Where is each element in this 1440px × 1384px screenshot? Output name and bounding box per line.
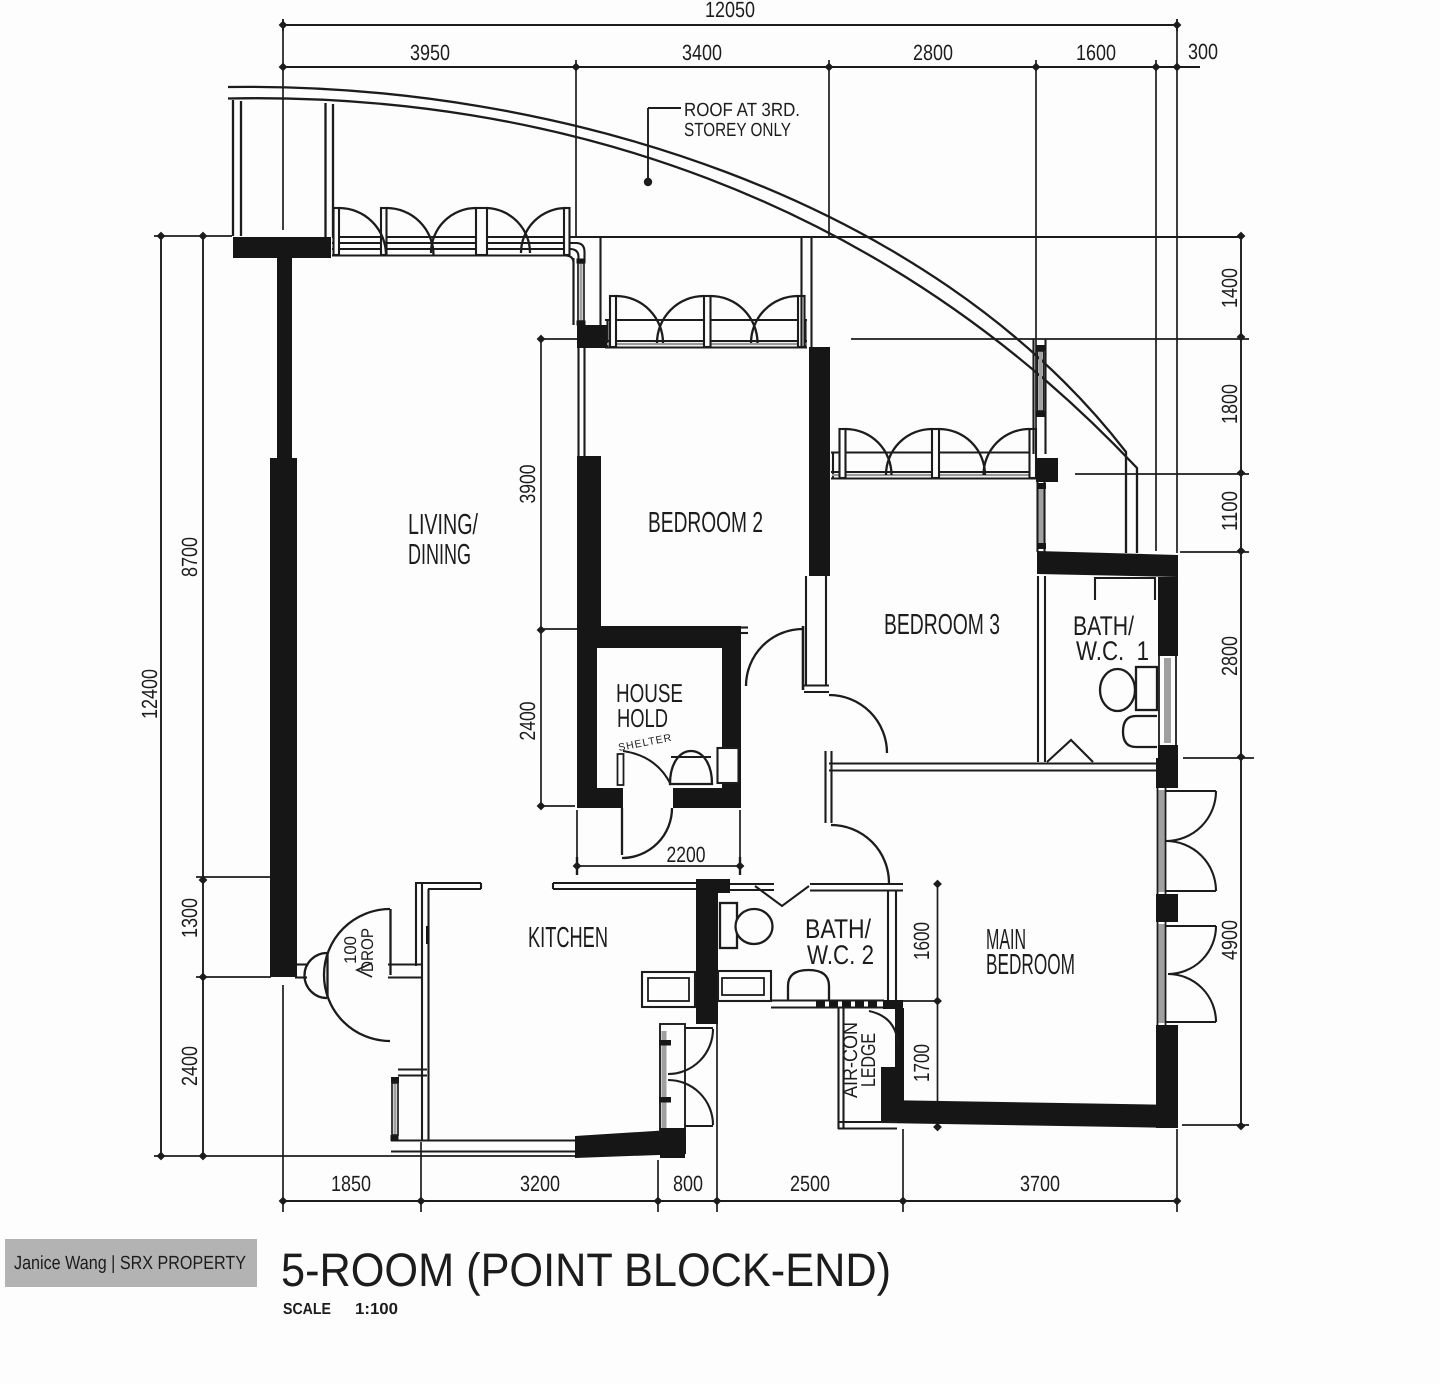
svg-text:Janice Wang | SRX PROPERTY: Janice Wang | SRX PROPERTY [14,1253,246,1274]
svg-text:3700: 3700 [1020,1171,1060,1196]
svg-text:3900: 3900 [515,465,540,504]
svg-text:12400: 12400 [137,669,162,719]
svg-text:2500: 2500 [790,1171,830,1196]
svg-text:KITCHEN: KITCHEN [528,922,608,954]
svg-text:BEDROOM 2: BEDROOM 2 [648,507,763,539]
svg-text:2800: 2800 [913,40,953,65]
svg-text:1700: 1700 [909,1044,934,1082]
svg-text:1:100: 1:100 [355,1301,398,1318]
svg-text:3400: 3400 [682,40,722,65]
svg-text:DINING: DINING [408,539,471,571]
svg-text:1850: 1850 [331,1171,371,1196]
svg-text:STOREY ONLY: STOREY ONLY [684,120,791,141]
svg-text:8700: 8700 [177,537,202,577]
svg-text:2200: 2200 [667,842,706,867]
svg-text:5-ROOM (POINT BLOCK-END): 5-ROOM (POINT BLOCK-END) [281,1243,891,1296]
svg-text:2800: 2800 [1217,636,1242,676]
svg-text:3200: 3200 [520,1171,560,1196]
svg-text:ROOF AT 3RD.: ROOF AT 3RD. [684,100,800,121]
svg-text:W.C. 1: W.C. 1 [1076,636,1149,666]
svg-text:BEDROOM 3: BEDROOM 3 [884,609,1000,641]
svg-text:3950: 3950 [410,40,450,65]
svg-text:SCALE: SCALE [283,1301,331,1318]
svg-text:12050: 12050 [705,0,755,22]
svg-text:1100: 1100 [1217,491,1242,531]
svg-text:HOLD: HOLD [617,703,668,733]
svg-text:BEDROOM: BEDROOM [986,949,1075,981]
svg-text:W.C. 2: W.C. 2 [807,940,874,970]
svg-text:2400: 2400 [177,1046,202,1086]
svg-text:1400: 1400 [1217,268,1242,308]
svg-text:LEDGE: LEDGE [858,1033,880,1087]
svg-text:LIVING/: LIVING/ [408,509,479,541]
svg-text:1600: 1600 [1076,40,1116,65]
svg-text:1800: 1800 [1217,384,1242,424]
svg-text:800: 800 [673,1171,703,1196]
svg-text:300: 300 [1188,39,1218,64]
svg-text:1300: 1300 [177,898,202,938]
svg-text:2400: 2400 [515,702,540,741]
svg-text:4900: 4900 [1217,920,1242,960]
svg-text:1600: 1600 [909,922,934,960]
